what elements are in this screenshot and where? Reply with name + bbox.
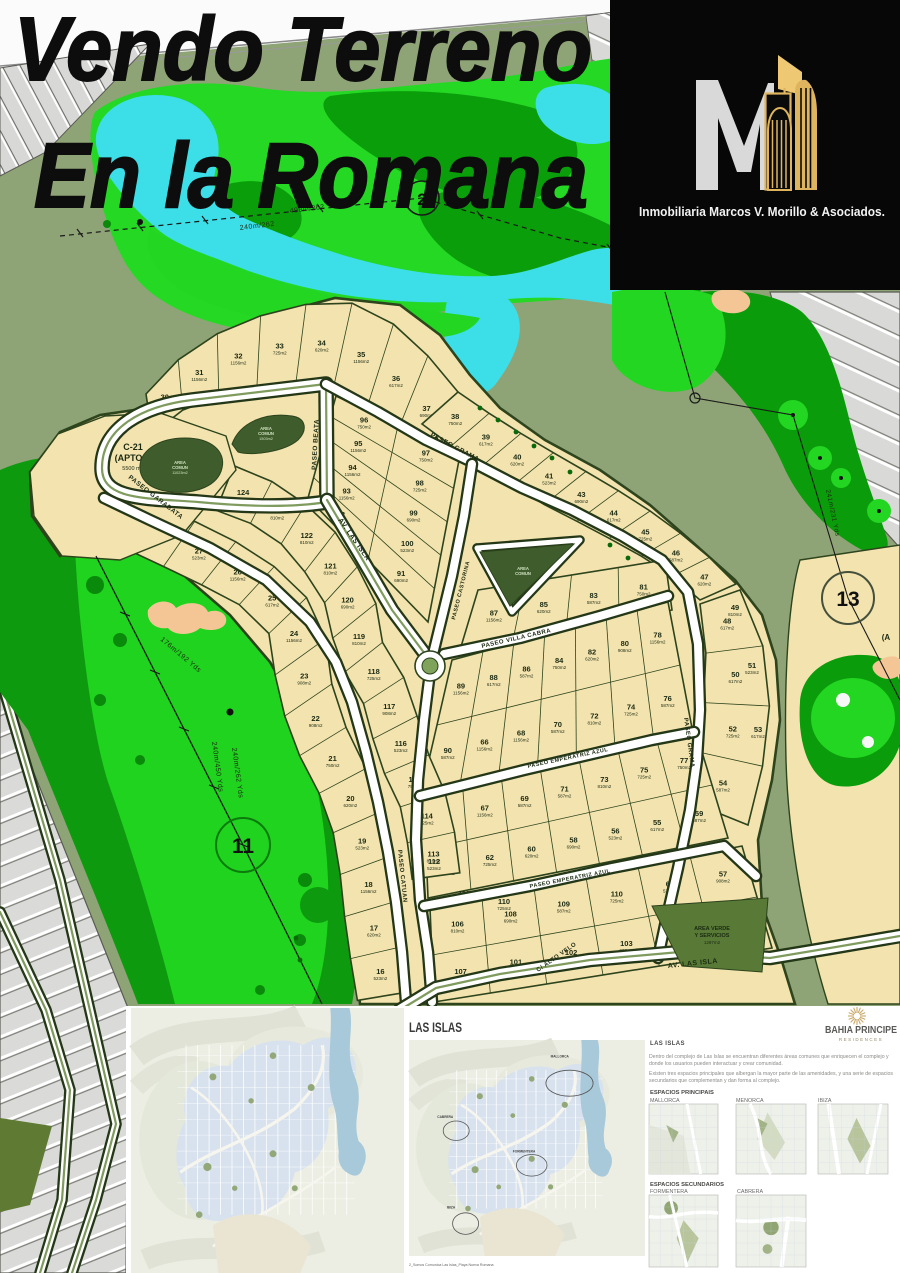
svg-text:54: 54 (719, 779, 728, 788)
svg-text:908m2: 908m2 (716, 879, 730, 884)
svg-text:89: 89 (457, 681, 465, 690)
svg-text:523m2: 523m2 (374, 976, 388, 981)
svg-text:87: 87 (490, 609, 498, 618)
svg-text:1156m2: 1156m2 (286, 638, 302, 643)
svg-text:810m2: 810m2 (324, 570, 338, 575)
svg-text:119: 119 (353, 632, 365, 641)
svg-text:95: 95 (354, 439, 362, 448)
svg-text:Y SERVICIOS: Y SERVICIOS (695, 933, 730, 939)
svg-text:51: 51 (748, 661, 756, 670)
svg-text:secundarios que complementan y: secundarios que complementan y dan forma… (649, 1078, 781, 1084)
svg-text:46: 46 (672, 549, 680, 558)
svg-text:82: 82 (588, 648, 596, 657)
svg-text:71: 71 (560, 785, 568, 794)
svg-text:617m2: 617m2 (479, 442, 493, 447)
svg-text:109: 109 (557, 900, 570, 909)
svg-text:FORMENTERA: FORMENTERA (513, 1149, 536, 1153)
svg-text:725m2: 725m2 (497, 906, 511, 911)
svg-text:Inmobiliaria Marcos V. Morillo: Inmobiliaria Marcos V. Morillo & Asociad… (639, 205, 885, 219)
svg-text:67: 67 (481, 803, 489, 812)
svg-text:68: 68 (517, 729, 525, 738)
svg-text:Vendo Terreno: Vendo Terreno (14, 0, 592, 100)
svg-text:76: 76 (664, 694, 672, 703)
svg-text:617m2: 617m2 (650, 827, 664, 832)
svg-text:725m2: 725m2 (367, 676, 381, 681)
svg-text:690m2: 690m2 (575, 499, 589, 504)
svg-text:1156m2: 1156m2 (477, 812, 493, 817)
svg-text:1503m2: 1503m2 (259, 437, 273, 441)
svg-text:70: 70 (554, 720, 562, 729)
svg-text:78: 78 (653, 631, 661, 640)
svg-text:donde los usuarios pueden inte: donde los usuarios pueden interactuar y … (649, 1061, 783, 1067)
svg-text:587m2: 587m2 (716, 788, 730, 793)
svg-text:23: 23 (300, 671, 308, 680)
svg-text:750m2: 750m2 (326, 763, 340, 768)
svg-text:587m2: 587m2 (520, 673, 534, 678)
svg-text:116: 116 (395, 739, 407, 748)
svg-text:53: 53 (754, 725, 762, 734)
svg-text:620m2: 620m2 (367, 933, 381, 938)
svg-text:66: 66 (480, 737, 488, 746)
svg-text:IBIZA: IBIZA (447, 1206, 456, 1210)
svg-text:CABRERA: CABRERA (437, 1115, 454, 1119)
svg-text:587m2: 587m2 (518, 803, 532, 808)
svg-text:C-21: C-21 (123, 442, 143, 452)
svg-text:52: 52 (729, 725, 737, 734)
svg-text:617m2: 617m2 (265, 603, 279, 608)
svg-text:IBIZA: IBIZA (818, 1098, 832, 1104)
svg-text:587m2: 587m2 (441, 755, 455, 760)
svg-text:810m2: 810m2 (352, 641, 366, 646)
svg-text:31: 31 (195, 368, 203, 377)
svg-text:62: 62 (486, 853, 494, 862)
svg-text:908m2: 908m2 (309, 723, 323, 728)
svg-text:ESPACIOS PRINCIPAIS: ESPACIOS PRINCIPAIS (650, 1090, 714, 1096)
svg-text:117: 117 (383, 702, 395, 711)
svg-text:587m2: 587m2 (661, 703, 675, 708)
svg-text:587m2: 587m2 (587, 600, 601, 605)
svg-text:1156m2: 1156m2 (353, 359, 369, 364)
svg-text:37: 37 (422, 404, 430, 413)
svg-text:LAS ISLAS: LAS ISLAS (650, 1041, 685, 1047)
svg-text:43: 43 (577, 490, 585, 499)
svg-text:110: 110 (498, 897, 510, 906)
svg-text:80: 80 (621, 639, 629, 648)
svg-text:1156m2: 1156m2 (191, 377, 207, 382)
svg-text:19: 19 (358, 836, 366, 845)
svg-text:FORMENTERA: FORMENTERA (650, 1189, 688, 1195)
svg-text:1156m2: 1156m2 (350, 448, 366, 453)
svg-text:523m2: 523m2 (192, 556, 206, 561)
svg-text:690m2: 690m2 (567, 845, 581, 850)
svg-text:94: 94 (348, 463, 357, 472)
svg-text:725m2: 725m2 (637, 775, 651, 780)
svg-text:36: 36 (392, 374, 400, 383)
svg-text:810m2: 810m2 (588, 720, 602, 725)
svg-text:34: 34 (318, 339, 327, 348)
svg-text:620m2: 620m2 (537, 609, 551, 614)
svg-text:CABRERA: CABRERA (737, 1189, 763, 1195)
svg-text:690m2: 690m2 (341, 605, 355, 610)
svg-text:32: 32 (234, 352, 242, 361)
svg-text:49: 49 (731, 603, 739, 612)
svg-text:1297m2: 1297m2 (704, 940, 721, 945)
svg-text:11023m2: 11023m2 (172, 471, 188, 475)
svg-text:750m2: 750m2 (552, 665, 566, 670)
svg-text:77: 77 (680, 756, 688, 765)
svg-text:620m2: 620m2 (510, 462, 524, 467)
svg-text:523m2: 523m2 (542, 481, 556, 486)
svg-text:121: 121 (324, 561, 337, 570)
svg-text:73: 73 (600, 775, 608, 784)
svg-text:83: 83 (590, 591, 598, 600)
svg-text:38: 38 (451, 412, 459, 421)
svg-text:523m2: 523m2 (394, 748, 408, 753)
svg-text:1156m2: 1156m2 (361, 889, 377, 894)
svg-text:69: 69 (520, 794, 528, 803)
svg-text:RESIDENCES: RESIDENCES (839, 1037, 883, 1042)
svg-text:97: 97 (422, 448, 430, 457)
svg-text:1156m2: 1156m2 (345, 472, 361, 477)
svg-text:90: 90 (444, 746, 452, 755)
svg-text:810m2: 810m2 (728, 612, 742, 617)
svg-text:COMUN: COMUN (258, 431, 274, 436)
svg-text:98: 98 (416, 479, 424, 488)
svg-text:13: 13 (836, 588, 859, 611)
svg-text:1156m2: 1156m2 (230, 361, 246, 366)
svg-text:1156m2: 1156m2 (339, 496, 355, 501)
svg-text:AREA VERDE: AREA VERDE (694, 926, 730, 932)
svg-text:690m2: 690m2 (394, 578, 408, 583)
svg-text:725m2: 725m2 (610, 899, 624, 904)
svg-text:81: 81 (639, 582, 647, 591)
svg-text:MALLORCA: MALLORCA (551, 1054, 570, 1058)
svg-text:1156m2: 1156m2 (477, 746, 493, 751)
svg-text:Dentro del complejo de Las Isl: Dentro del complejo de Las Islas se encu… (649, 1054, 889, 1060)
svg-text:88: 88 (490, 673, 498, 682)
svg-text:17: 17 (370, 924, 378, 933)
svg-text:617m2: 617m2 (751, 734, 765, 739)
svg-text:1156m2: 1156m2 (486, 618, 502, 623)
svg-text:75: 75 (640, 766, 648, 775)
svg-text:LAS ISLAS: LAS ISLAS (409, 1019, 462, 1035)
svg-text:35: 35 (357, 350, 365, 359)
svg-text:85: 85 (540, 600, 548, 609)
svg-text:1156m2: 1156m2 (453, 690, 469, 695)
svg-text:41: 41 (545, 472, 553, 481)
svg-text:16: 16 (376, 967, 384, 976)
svg-text:750m2: 750m2 (448, 421, 462, 426)
svg-text:En la Romana: En la Romana (34, 125, 588, 227)
svg-text:BAHIA PRINCIPE: BAHIA PRINCIPE (825, 1024, 897, 1036)
svg-text:57: 57 (719, 870, 727, 879)
svg-text:620m2: 620m2 (344, 803, 358, 808)
svg-text:(A: (A (882, 633, 891, 642)
svg-text:750m2: 750m2 (357, 425, 371, 430)
svg-text:620m2: 620m2 (585, 657, 599, 662)
svg-text:617m2: 617m2 (729, 679, 743, 684)
svg-text:725m2: 725m2 (726, 734, 740, 739)
svg-text:110: 110 (611, 890, 623, 899)
svg-text:84: 84 (555, 656, 564, 665)
svg-text:ESPACIOS SECUNDARIOS: ESPACIOS SECUNDARIOS (650, 1182, 724, 1188)
svg-text:112: 112 (428, 857, 440, 866)
svg-text:690m2: 690m2 (407, 518, 421, 523)
svg-text:810m2: 810m2 (270, 515, 284, 520)
svg-text:620m2: 620m2 (698, 581, 712, 586)
svg-text:908m2: 908m2 (382, 711, 396, 716)
svg-text:908m2: 908m2 (297, 680, 311, 685)
svg-text:44: 44 (610, 508, 619, 517)
svg-text:120: 120 (341, 596, 354, 605)
svg-text:91: 91 (397, 569, 405, 578)
svg-text:74: 74 (627, 703, 636, 712)
svg-text:1156m2: 1156m2 (650, 640, 666, 645)
svg-text:523m2: 523m2 (609, 836, 623, 841)
svg-text:21: 21 (328, 754, 336, 763)
svg-text:523m2: 523m2 (745, 670, 759, 675)
svg-text:20: 20 (346, 794, 354, 803)
svg-text:620m2: 620m2 (315, 348, 329, 353)
svg-text:617m2: 617m2 (487, 682, 501, 687)
svg-text:96: 96 (360, 416, 368, 425)
svg-text:587m2: 587m2 (557, 909, 571, 914)
svg-text:MENORCA: MENORCA (736, 1098, 764, 1104)
svg-text:47: 47 (700, 572, 708, 581)
svg-text:106: 106 (451, 920, 464, 929)
svg-text:11: 11 (232, 835, 255, 858)
svg-text:523m2: 523m2 (400, 548, 414, 553)
svg-text:617m2: 617m2 (389, 383, 403, 388)
svg-text:122: 122 (300, 531, 313, 540)
svg-text:Existen tres espacios principa: Existen tres espacios principales que al… (649, 1071, 893, 1077)
svg-text:523m2: 523m2 (427, 866, 441, 871)
svg-text:100: 100 (401, 539, 414, 548)
svg-text:617m2: 617m2 (720, 625, 734, 630)
svg-text:48: 48 (723, 616, 731, 625)
svg-text:22: 22 (311, 714, 319, 723)
svg-text:750m2: 750m2 (419, 457, 433, 462)
svg-text:810m2: 810m2 (300, 540, 314, 545)
svg-text:908m2: 908m2 (618, 648, 632, 653)
svg-text:617m2: 617m2 (607, 517, 621, 522)
svg-text:1156m2: 1156m2 (230, 577, 246, 582)
svg-text:118: 118 (368, 667, 380, 676)
svg-text:2_Somos Comunica Las Islas_Pla: 2_Somos Comunica Las Islas_Playa Nueva R… (409, 1263, 494, 1267)
svg-text:72: 72 (590, 711, 598, 720)
svg-text:33: 33 (276, 342, 284, 351)
svg-text:587m2: 587m2 (558, 794, 572, 799)
svg-text:587m2: 587m2 (551, 729, 565, 734)
svg-text:24: 24 (290, 629, 299, 638)
svg-text:45: 45 (641, 528, 649, 537)
svg-text:620m2: 620m2 (525, 853, 539, 858)
svg-text:58: 58 (569, 836, 577, 845)
svg-text:725m2: 725m2 (624, 712, 638, 717)
svg-text:93: 93 (343, 487, 351, 496)
svg-text:690m2: 690m2 (504, 919, 518, 924)
svg-text:523m2: 523m2 (355, 845, 369, 850)
svg-text:99: 99 (409, 509, 417, 518)
svg-text:1156m2: 1156m2 (513, 738, 529, 743)
svg-text:86: 86 (522, 664, 530, 673)
svg-text:725m2: 725m2 (483, 862, 497, 867)
svg-text:18: 18 (364, 880, 372, 889)
svg-text:55: 55 (653, 818, 661, 827)
svg-text:56: 56 (611, 827, 619, 836)
svg-text:MALLORCA: MALLORCA (650, 1098, 680, 1104)
svg-text:39: 39 (482, 433, 490, 442)
svg-text:810m2: 810m2 (451, 929, 465, 934)
svg-text:60: 60 (527, 844, 535, 853)
svg-text:124: 124 (237, 488, 250, 497)
svg-text:810m2: 810m2 (598, 784, 612, 789)
svg-text:COMUN: COMUN (172, 465, 188, 470)
svg-text:40: 40 (513, 453, 521, 462)
svg-text:103: 103 (620, 939, 633, 948)
svg-text:COMUN: COMUN (515, 571, 531, 576)
svg-text:725m2: 725m2 (413, 488, 427, 493)
svg-text:50: 50 (731, 670, 739, 679)
svg-text:725m2: 725m2 (273, 351, 287, 356)
